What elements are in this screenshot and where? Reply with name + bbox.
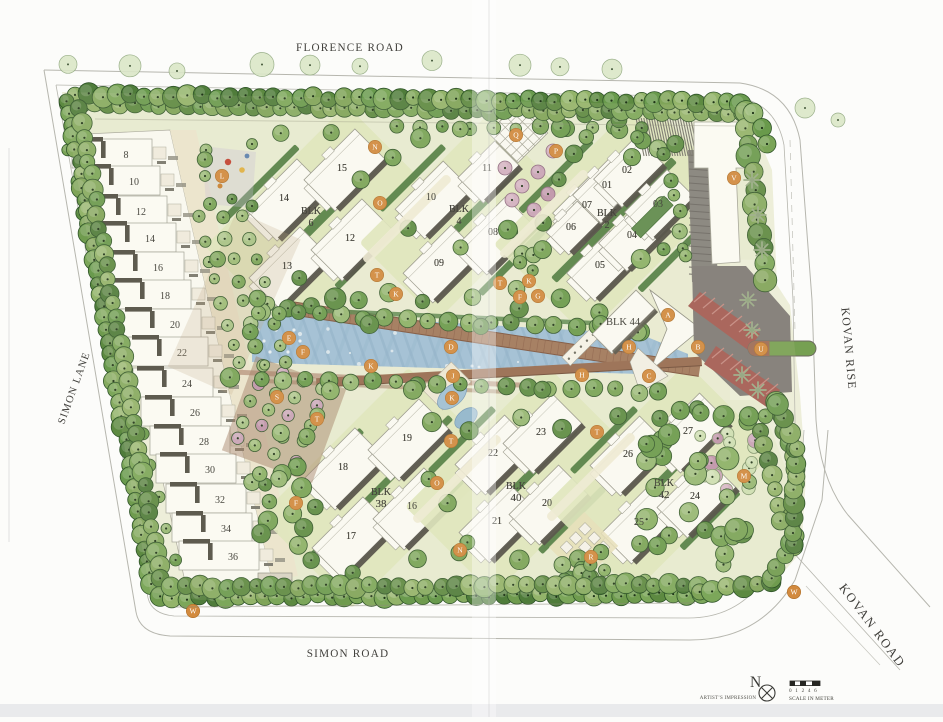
svg-text:ARTIST’S IMPRESSION: ARTIST’S IMPRESSION (700, 696, 757, 701)
svg-text:0 1 2 4 6: 0 1 2 4 6 (789, 688, 818, 694)
svg-text:FLORENCE ROAD: FLORENCE ROAD (296, 42, 404, 54)
svg-text:N: N (750, 674, 761, 691)
svg-text:W: W (790, 588, 798, 597)
svg-text:SIMON ROAD: SIMON ROAD (307, 648, 390, 660)
svg-text:W: W (189, 607, 197, 616)
svg-text:SCALE IN METER: SCALE IN METER (789, 696, 834, 702)
